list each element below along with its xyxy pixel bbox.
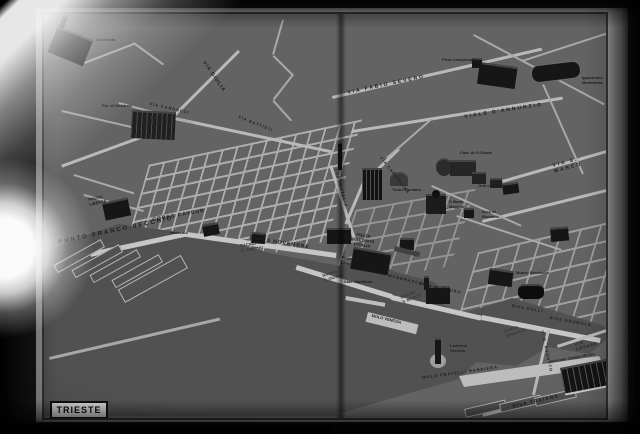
label-idroscalo: Idroscalo (170, 231, 188, 236)
building-fiera (477, 62, 518, 89)
label-museo-revoltella: Museo Revoltella (516, 271, 549, 276)
street-zigzag-4 (273, 100, 293, 121)
building-museo-revoltella (488, 268, 514, 287)
label-ippodromo: Ippodromo Montebello (582, 76, 606, 86)
building-east-block (550, 226, 569, 242)
street-zigzag-3 (273, 74, 294, 100)
building-acquario (518, 284, 544, 299)
trieste-city-map: Università Pal. di Giustizia Fiera Campi… (42, 12, 608, 420)
label-s-maria-maggiore: S.Maria Maggiore (449, 200, 467, 210)
street-zigzag-1 (272, 19, 284, 54)
map-title: TRIESTE (56, 405, 101, 415)
building-ippodromo (530, 60, 582, 84)
label-piazza-unita: PIAZZA DELL'UNITÀ D'ITALIA (350, 232, 375, 250)
label-castello: Cast. di S.Giusto (460, 151, 492, 156)
book-spine-shadow (336, 14, 346, 418)
building-grattacielo (362, 168, 382, 200)
building-university-tower (59, 14, 69, 29)
street-dannunzio (352, 97, 563, 133)
label-universita: Università (96, 38, 115, 43)
lighthouse-tower (435, 338, 441, 364)
film-edge-bar (0, 425, 330, 434)
building-palazzo-giustizia (131, 110, 176, 140)
map-photo: Università Pal. di Giustizia Fiera Campi… (0, 0, 640, 434)
map-title-box: TRIESTE (50, 401, 108, 419)
label-arco-riccardo: Arco di Riccardo (482, 210, 499, 220)
street-university-1 (84, 43, 134, 64)
street-station-n2 (73, 174, 134, 194)
label-orto-lapidario: Orto Lapidario (478, 184, 506, 189)
street-university-2 (133, 42, 164, 65)
label-fiera: Fiera Campionaria (442, 58, 477, 63)
label-pal-giustizia: Pal. di Giustizia (102, 104, 132, 109)
street-topright-1 (522, 21, 608, 62)
label-via-fabio-severo: VIA FABIO SEVERO (347, 74, 426, 96)
label-staz-marittima: Staz. Marittima (344, 280, 372, 285)
label-lanterna: Lanterna Vecchia (450, 344, 467, 354)
book-page: Università Pal. di Giustizia Fiera Campi… (36, 8, 628, 422)
dome-s-maria (432, 190, 440, 198)
street-zigzag-2 (273, 55, 294, 76)
